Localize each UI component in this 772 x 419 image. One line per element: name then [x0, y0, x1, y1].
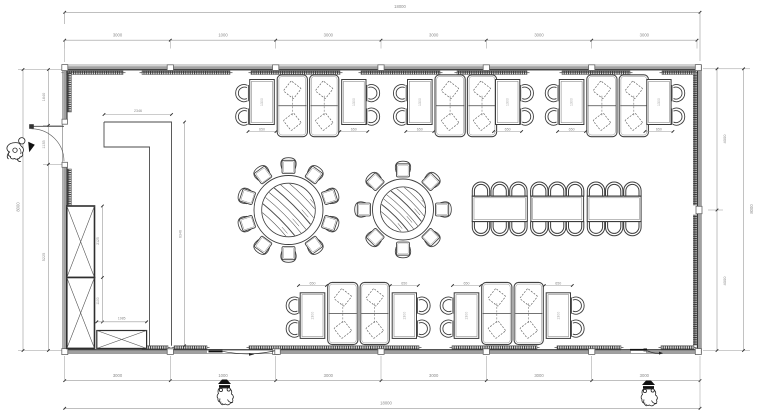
svg-text:3000: 3000	[324, 32, 334, 37]
svg-text:3000: 3000	[640, 373, 650, 378]
svg-text:650: 650	[259, 127, 265, 131]
svg-text:3000: 3000	[324, 373, 334, 378]
svg-text:18000: 18000	[394, 4, 406, 9]
svg-text:650: 650	[656, 127, 662, 131]
svg-text:18000: 18000	[380, 400, 392, 405]
svg-text:1300: 1300	[352, 98, 356, 106]
svg-text:650: 650	[310, 281, 316, 285]
svg-text:6346: 6346	[178, 230, 182, 238]
svg-text:1640: 1640	[42, 93, 46, 101]
svg-text:2125: 2125	[96, 237, 100, 245]
svg-text:650: 650	[555, 281, 561, 285]
svg-text:1000: 1000	[218, 32, 228, 37]
svg-text:4000: 4000	[722, 276, 727, 286]
svg-text:1000: 1000	[218, 373, 228, 378]
svg-text:1300: 1300	[311, 312, 315, 320]
svg-text:1300: 1300	[465, 312, 469, 320]
svg-text:5225: 5225	[42, 253, 46, 261]
svg-text:1300: 1300	[570, 98, 574, 106]
svg-text:3000: 3000	[429, 373, 439, 378]
svg-text:8000: 8000	[16, 202, 21, 212]
svg-text:3000: 3000	[534, 373, 544, 378]
svg-text:650: 650	[464, 281, 470, 285]
svg-text:650: 650	[505, 127, 511, 131]
svg-text:1100: 1100	[96, 297, 100, 304]
svg-text:650: 650	[351, 127, 357, 131]
svg-text:1300: 1300	[556, 312, 560, 320]
svg-text:650: 650	[417, 127, 423, 131]
svg-text:3000: 3000	[113, 373, 123, 378]
svg-text:3000: 3000	[113, 32, 123, 37]
svg-text:1300: 1300	[418, 98, 422, 106]
svg-text:1985: 1985	[118, 317, 126, 321]
svg-text:3000: 3000	[429, 32, 439, 37]
svg-text:3000: 3000	[534, 32, 544, 37]
svg-text:1300: 1300	[402, 312, 406, 320]
svg-text:650: 650	[401, 281, 407, 285]
svg-text:1135: 1135	[42, 140, 46, 148]
svg-text:1300: 1300	[657, 98, 661, 106]
svg-text:2346: 2346	[134, 109, 142, 113]
svg-text:8000: 8000	[749, 204, 754, 214]
svg-text:4000: 4000	[722, 134, 727, 144]
svg-text:1300: 1300	[506, 98, 510, 106]
svg-text:650: 650	[569, 127, 575, 131]
svg-text:3000: 3000	[640, 32, 650, 37]
svg-text:1300: 1300	[260, 98, 264, 106]
